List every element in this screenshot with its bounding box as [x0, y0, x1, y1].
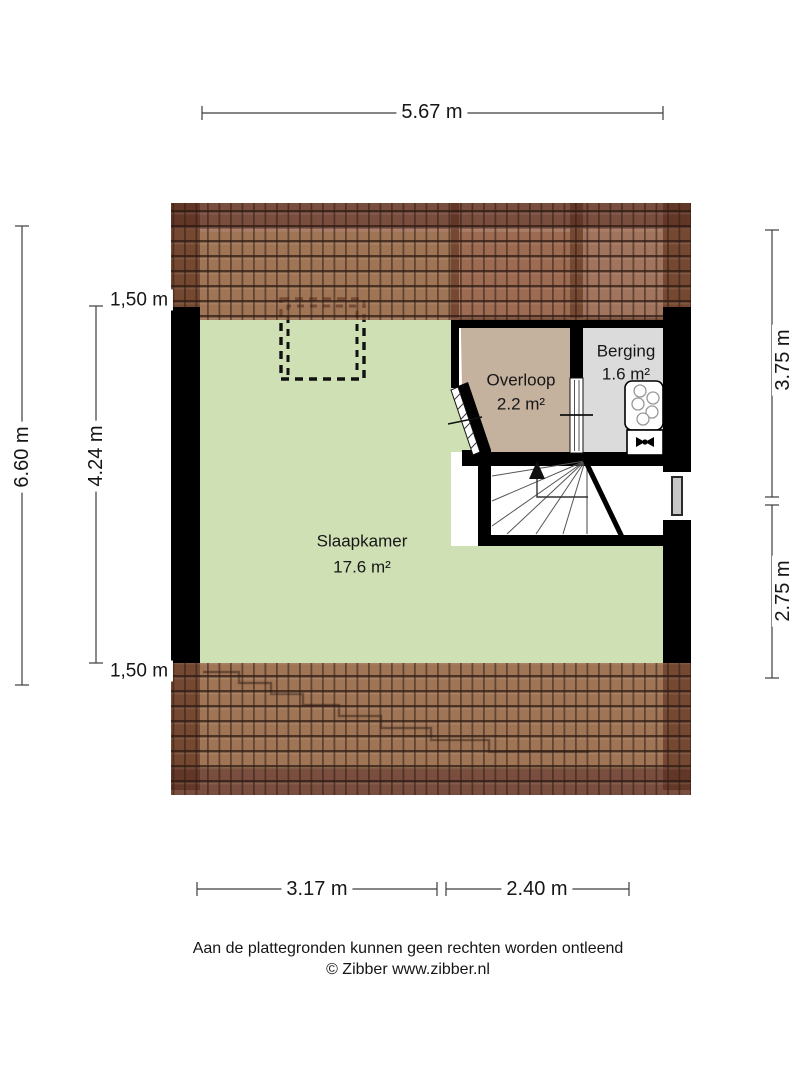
dimension-left-roof-top: 1,50 m: [105, 290, 173, 311]
dimension-right-lower: 2.75 m: [772, 555, 794, 626]
stairwell-floor: [478, 452, 663, 546]
overloop-area: 2.2 m²: [497, 396, 545, 413]
roof-top: [171, 203, 691, 320]
dimension-bottom-left: 3.17 m: [281, 878, 352, 900]
window-right-wall: [663, 472, 691, 520]
slaapkamer-area: 17.6 m²: [333, 559, 391, 576]
dimension-top: 5.67 m: [396, 101, 467, 123]
dimension-bottom-right: 2.40 m: [501, 878, 572, 900]
slaapkamer-label: Slaapkamer: [317, 533, 408, 550]
overloop-label: Overloop: [487, 372, 556, 389]
dimension-left-room: 4.24 m: [85, 420, 107, 491]
berging-area: 1.6 m²: [602, 366, 650, 383]
wall-stairs-left: [478, 466, 491, 546]
copyright-text: © Zibber www.zibber.nl: [326, 962, 490, 978]
berging-fixtures: [625, 381, 663, 455]
wall-stairs-bottom: [478, 535, 663, 546]
floor-plan-page: 5.67 m 6.60 m 1,50 m 4.24 m 1,50 m 3.75 …: [0, 0, 810, 1080]
disclaimer-text: Aan de plattegronden kunnen geen rechten…: [193, 941, 624, 957]
roof-bottom: [171, 663, 691, 795]
berging-label: Berging: [597, 343, 656, 360]
dimension-left-outer: 6.60 m: [11, 421, 33, 492]
dimension-right-upper: 3.75 m: [772, 324, 794, 395]
dimension-left-roof-bottom: 1,50 m: [105, 661, 173, 682]
